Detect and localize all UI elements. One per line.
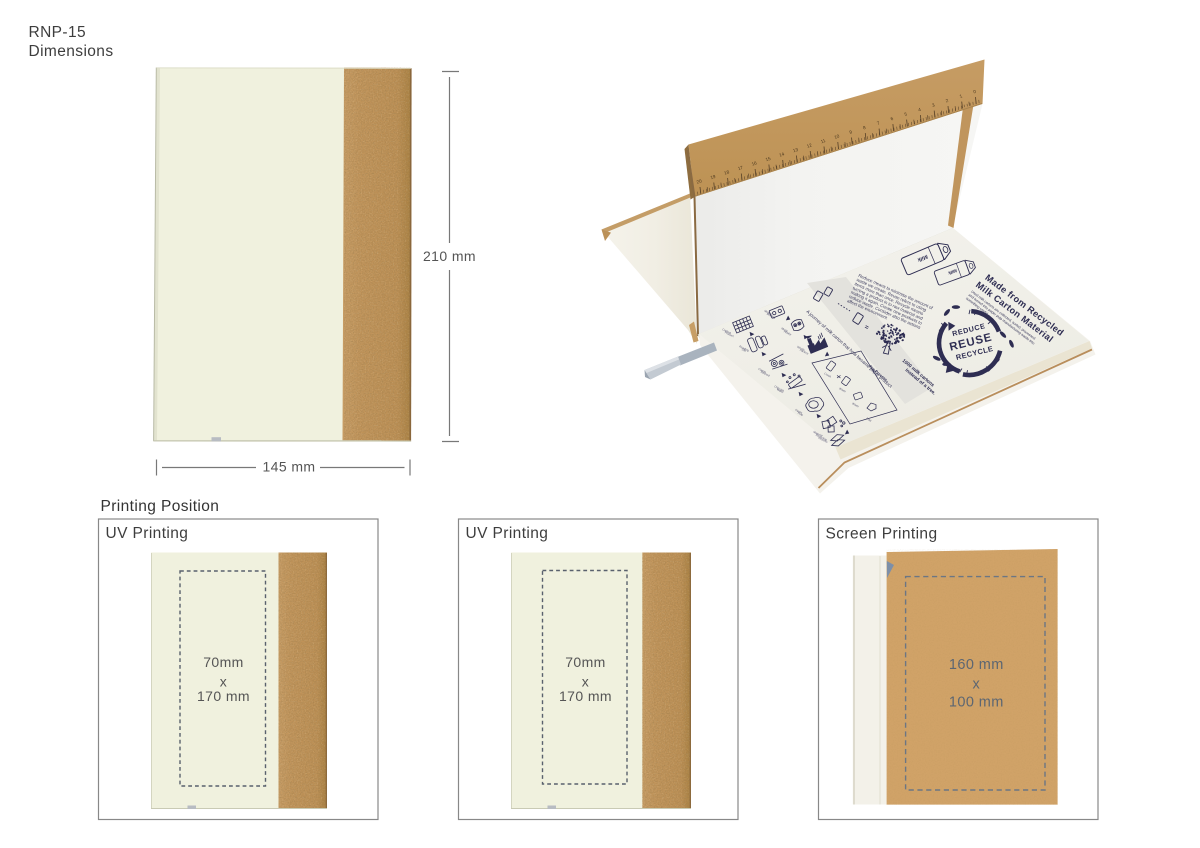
svg-text:UV Printing: UV Printing bbox=[106, 525, 189, 542]
svg-text:100 mm: 100 mm bbox=[949, 695, 1004, 711]
svg-text:Screen Printing: Screen Printing bbox=[826, 526, 938, 543]
svg-text:70mm: 70mm bbox=[203, 654, 244, 670]
svg-text:x: x bbox=[972, 677, 980, 693]
svg-text:RNP-15: RNP-15 bbox=[29, 24, 87, 41]
svg-text:170 mm: 170 mm bbox=[559, 688, 612, 704]
svg-text:Dimensions: Dimensions bbox=[29, 43, 114, 60]
svg-text:145 mm: 145 mm bbox=[263, 459, 316, 475]
svg-text:160 mm: 160 mm bbox=[949, 657, 1004, 673]
svg-text:70mm: 70mm bbox=[565, 654, 606, 670]
svg-text:170 mm: 170 mm bbox=[197, 688, 250, 704]
svg-text:Printing Position: Printing Position bbox=[101, 498, 220, 515]
svg-text:UV Printing: UV Printing bbox=[466, 525, 549, 542]
svg-text:210 mm: 210 mm bbox=[423, 248, 476, 264]
